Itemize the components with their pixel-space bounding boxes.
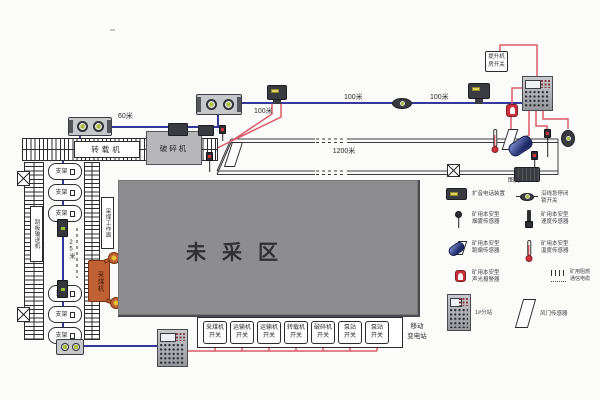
legend-line: 烟雾传感器 (472, 219, 520, 226)
support-label: 支架 (55, 333, 67, 339)
voice-phone-device (267, 85, 287, 100)
sensor-led (61, 288, 65, 291)
station-leds (459, 298, 468, 306)
support-sensor-box (70, 190, 75, 196)
pole-sensor-icon (206, 152, 213, 172)
support-label: 支架 (55, 190, 67, 196)
switch-label: 开关 (371, 333, 383, 340)
voice-phone-device (468, 83, 490, 99)
junction-terminal-icon (72, 343, 80, 351)
device-stub (273, 100, 281, 104)
device-window (472, 87, 480, 91)
face-substation (157, 329, 188, 367)
junction-terminal-icon (93, 121, 104, 132)
junction-terminal-icon (223, 99, 234, 110)
crusher-label-text: 破碎机 (160, 143, 189, 154)
pole-head (455, 211, 462, 218)
pull-wire-switch-device (392, 98, 412, 109)
legend-line: 温度传感器 (541, 248, 589, 255)
station-screen (525, 80, 541, 89)
distance-label: 100米 (344, 92, 363, 102)
cable-icon (551, 270, 566, 276)
switch-box: 破碎机开关 (311, 321, 335, 344)
belt-edge (217, 171, 558, 175)
switch-label: 运输机 (233, 325, 251, 332)
station-leds (176, 333, 185, 341)
switch-box: 泵站开关 (365, 321, 389, 344)
face-sensor-icon (57, 280, 68, 298)
switch-label: 开关 (236, 333, 248, 340)
distance-label: 100米 (254, 106, 273, 116)
device-window (271, 89, 279, 93)
junction-cap (69, 120, 73, 133)
switch-box: 运输机开关 (257, 321, 281, 344)
hoist-box-line1: 提升机 (488, 54, 505, 61)
station-buttons (450, 309, 468, 328)
sensor-dot (566, 136, 571, 141)
pole-led (546, 132, 550, 135)
station-buttons (160, 344, 185, 364)
cable-icon (551, 281, 566, 282)
legend-line: 风门传感器 (540, 311, 582, 318)
monitoring-substation (522, 76, 553, 111)
left-strip-label: 刮板输送机 (30, 206, 43, 262)
hoist-box-line2: 房开关 (488, 62, 505, 69)
legend-line: 声光报警器 (472, 277, 520, 284)
legend-label: 矿用本安型烟雾传感器 (472, 212, 520, 226)
conveyor-drive-icon (17, 171, 30, 186)
comm-junction-box (68, 117, 112, 136)
junction-cap (107, 120, 111, 133)
transfer-label-text: 转载机 (91, 144, 123, 155)
station-screen (160, 333, 176, 342)
face-scraper-conveyor-track (84, 162, 100, 340)
transfer-conveyor-label: 转载机 (74, 141, 140, 158)
conveyor-drive-icon (447, 164, 460, 177)
legend-label: 风门传感器 (540, 311, 582, 318)
junction-cap (237, 97, 241, 111)
face-sensor-icon (57, 219, 68, 237)
support-sensor-box (70, 169, 75, 175)
distance-label: 60米 (118, 111, 133, 121)
switch-label: 泵站 (371, 325, 383, 332)
mine-monitoring-diagram: { "top_line": { "distances": { "d60": "6… (0, 0, 600, 400)
comm-junction-box (196, 94, 242, 115)
support-label: 支架 (55, 169, 67, 175)
legend-line: 1#分站 (475, 310, 505, 317)
support-label: 支架 (55, 312, 67, 318)
alarm-icon (455, 270, 466, 282)
unmined-area-label: 未采区 (140, 236, 340, 265)
thermometer-bulb (492, 146, 499, 153)
support-sensor-box (70, 211, 75, 217)
legend-line: 速度传感器 (541, 219, 589, 226)
legend-line: 扩音电话装置 (472, 191, 520, 198)
pull-wire-switch-icon (520, 193, 534, 202)
wind-speed-sensor-icon (561, 130, 575, 147)
junction-terminal-icon (61, 343, 69, 351)
pole-head (206, 152, 213, 161)
legend-title: 图例 (508, 175, 520, 184)
device-stub (475, 99, 483, 104)
pole-sensor-icon (544, 129, 551, 157)
legend-label: 扩音电话装置 (472, 191, 520, 198)
legend-label: 矿用阻燃通信电缆 (570, 269, 600, 282)
hoist-room-switch-box: 提升机 房开关 (485, 51, 508, 72)
switch-box: 采煤机开关 (203, 321, 227, 344)
shearer-label: 采煤机 (94, 271, 104, 292)
switch-box: 运输机开关 (230, 321, 254, 344)
distance-label: 100米 (430, 92, 449, 102)
switch-label: 开关 (209, 333, 221, 340)
alarm-lamp (510, 107, 515, 114)
support-label: 支架 (55, 211, 67, 217)
print-artifact (110, 29, 115, 31)
junction-terminal-icon (206, 99, 217, 110)
device-window (450, 192, 458, 196)
switch-box: 转载机开关 (284, 321, 308, 344)
hydraulic-support: 支架 (48, 184, 82, 201)
legend-line: 锁开关 (541, 198, 589, 205)
belt-drive-motor-icon (198, 125, 214, 136)
shearer: 采煤机 (88, 260, 110, 302)
conveyor-drive-icon (17, 307, 30, 322)
legend-label: 矿用本安型跑偏传感器 (472, 241, 520, 255)
pole-led (208, 155, 212, 158)
pole-head (544, 129, 551, 138)
substation-icon (447, 294, 471, 331)
junction-terminal-icon (77, 121, 88, 132)
red-bus (187, 348, 377, 351)
alarm-lamp (458, 273, 463, 280)
switch-label: 转载机 (287, 325, 305, 332)
belt-distance-label: 1200米 (322, 146, 366, 156)
switch-label: 开关 (290, 333, 302, 340)
station-leds (541, 80, 550, 88)
legend-line: 跑偏传感器 (472, 248, 520, 255)
switch-dot (400, 101, 405, 106)
support-sensor-box (70, 312, 75, 318)
switch-label: 采煤机 (206, 325, 224, 332)
switch-label: 泵站 (344, 325, 356, 332)
alarm-icon (506, 104, 518, 117)
switch-label: 破碎机 (314, 325, 332, 332)
temperature-sensor-icon (525, 240, 533, 262)
switch-label: 运输机 (260, 325, 278, 332)
switch-label: 开关 (317, 333, 329, 340)
legend-label: 矿用本安型速度传感器 (541, 212, 589, 226)
support-sensor-box (70, 291, 75, 297)
pole-head (531, 151, 538, 160)
switch-label: 开关 (344, 333, 356, 340)
comm-junction-box (56, 339, 84, 355)
mobile-substation-line1: 移动 (404, 322, 430, 332)
pole-sensor-icon (219, 125, 226, 141)
sensor-spacing-label: 25米 (66, 240, 76, 270)
legend-label: 1#分站 (475, 310, 505, 317)
smoke-sensor-icon (455, 211, 462, 228)
belt-edge-break (316, 139, 346, 175)
switch-box: 泵站开关 (338, 321, 362, 344)
hydraulic-support: 支架 (48, 306, 82, 323)
hydraulic-support: 支架 (48, 163, 82, 180)
switch-dot (525, 194, 530, 199)
mobile-substation-line2: 变电站 (404, 332, 430, 342)
legend-label: 矿用本安型声光报警器 (472, 270, 520, 284)
voice-phone-icon (446, 188, 467, 200)
pole-led (533, 154, 537, 157)
temperature-sensor-icon (491, 129, 499, 153)
support-sensor-box (70, 333, 75, 339)
speed-sensor-icon (525, 221, 533, 228)
crusher-box: 破碎机 (146, 131, 202, 165)
thermometer-bulb (526, 255, 533, 262)
legend-label: 沿线急停闭锁开关 (541, 191, 589, 205)
right-strip-label: 采煤工作面 (101, 197, 114, 249)
station-buttons (525, 91, 550, 108)
junction-cap (197, 97, 201, 111)
pole-led (221, 128, 225, 131)
switch-label: 开关 (263, 333, 275, 340)
sensor-led (61, 227, 65, 230)
legend-line: 通信电缆 (570, 276, 600, 283)
belt-drive-motor-icon (168, 123, 188, 136)
legend-label: 矿用本安型温度传感器 (541, 241, 589, 255)
mobile-substation-label: 移动 变电站 (404, 322, 430, 342)
pole-head (219, 125, 226, 134)
